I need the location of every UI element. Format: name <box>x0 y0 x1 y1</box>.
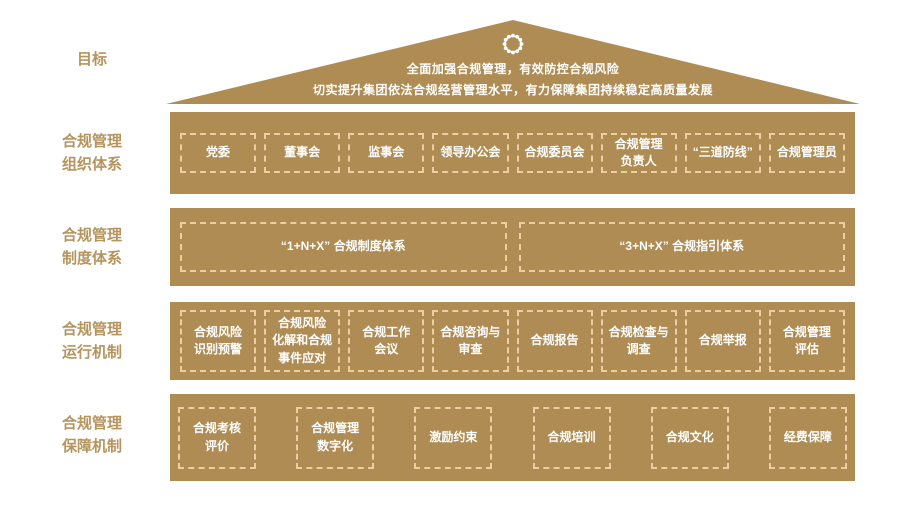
band-safeguard-mechanism: 合规考核 评价 合规管理 数字化 激励约束 合规培训 合规文化 经费保障 <box>170 394 855 481</box>
band-organization-system: 党委 董事会 监事会 领导办公会 合规委员会 合规管理 负责人 “三道防线” 合… <box>170 112 855 194</box>
org-box-three-lines-of-defense: “三道防线” <box>685 133 761 173</box>
band-operation-mechanism: 合规风险 识别预警 合规风险 化解和合规 事件应对 合规工作 会议 合规咨询与 … <box>170 302 855 380</box>
sg-box-culture: 合规文化 <box>651 407 729 469</box>
op-box-risk-identification: 合规风险 识别预警 <box>180 310 256 372</box>
sg-box-training: 合规培训 <box>533 407 611 469</box>
row-label-safeguard-mechanism: 合规管理 保障机制 <box>26 412 158 458</box>
op-box-whistleblowing: 合规举报 <box>685 310 761 372</box>
row-label-institution-system: 合规管理 制度体系 <box>26 224 158 270</box>
org-box-board-of-directors: 董事会 <box>264 133 340 173</box>
sg-box-funding-guarantee: 经费保障 <box>769 407 847 469</box>
op-box-inspection-investigation: 合规检查与 调查 <box>601 310 677 372</box>
inst-box-1nx-system: “1+N+X” 合规制度体系 <box>180 222 507 272</box>
op-box-management-evaluation: 合规管理 评估 <box>769 310 845 372</box>
op-box-work-meetings: 合规工作 会议 <box>348 310 424 372</box>
org-box-compliance-administrator: 合规管理员 <box>769 133 845 173</box>
goal-statement-line2: 切实提升集团依法合规经营管理水平，有力保障集团持续稳定高质量发展 <box>166 81 860 98</box>
org-box-board-of-supervisors: 监事会 <box>348 133 424 173</box>
goal-label: 目标 <box>26 48 158 71</box>
goal-roof-banner: 全面加强合规管理，有效防控合规风险 切实提升集团依法合规经营管理水平，有力保障集… <box>166 20 860 104</box>
sg-box-digitalization: 合规管理 数字化 <box>296 407 374 469</box>
row-label-operation-mechanism: 合规管理 运行机制 <box>26 318 158 364</box>
sg-box-incentive-restraint: 激励约束 <box>414 407 492 469</box>
inst-box-3nx-system: “3+N+X” 合规指引体系 <box>519 222 846 272</box>
goal-statement-line1: 全面加强合规管理，有效防控合规风险 <box>166 60 860 77</box>
sg-box-assessment-evaluation: 合规考核 评价 <box>178 407 256 469</box>
org-box-party-committee: 党委 <box>180 133 256 173</box>
org-box-compliance-officer: 合规管理 负责人 <box>601 133 677 173</box>
op-box-consultation-review: 合规咨询与 审查 <box>432 310 508 372</box>
gear-seal-icon <box>498 29 528 59</box>
band-institution-system: “1+N+X” 合规制度体系 “3+N+X” 合规指引体系 <box>170 208 855 286</box>
org-box-compliance-committee: 合规委员会 <box>517 133 593 173</box>
op-box-reporting: 合规报告 <box>517 310 593 372</box>
compliance-management-diagram: 全面加强合规管理，有效防控合规风险 切实提升集团依法合规经营管理水平，有力保障集… <box>0 0 900 507</box>
org-box-leadership-office: 领导办公会 <box>432 133 508 173</box>
row-label-organization-system: 合规管理 组织体系 <box>26 130 158 176</box>
op-box-risk-resolution: 合规风险 化解和合规 事件应对 <box>264 310 340 372</box>
